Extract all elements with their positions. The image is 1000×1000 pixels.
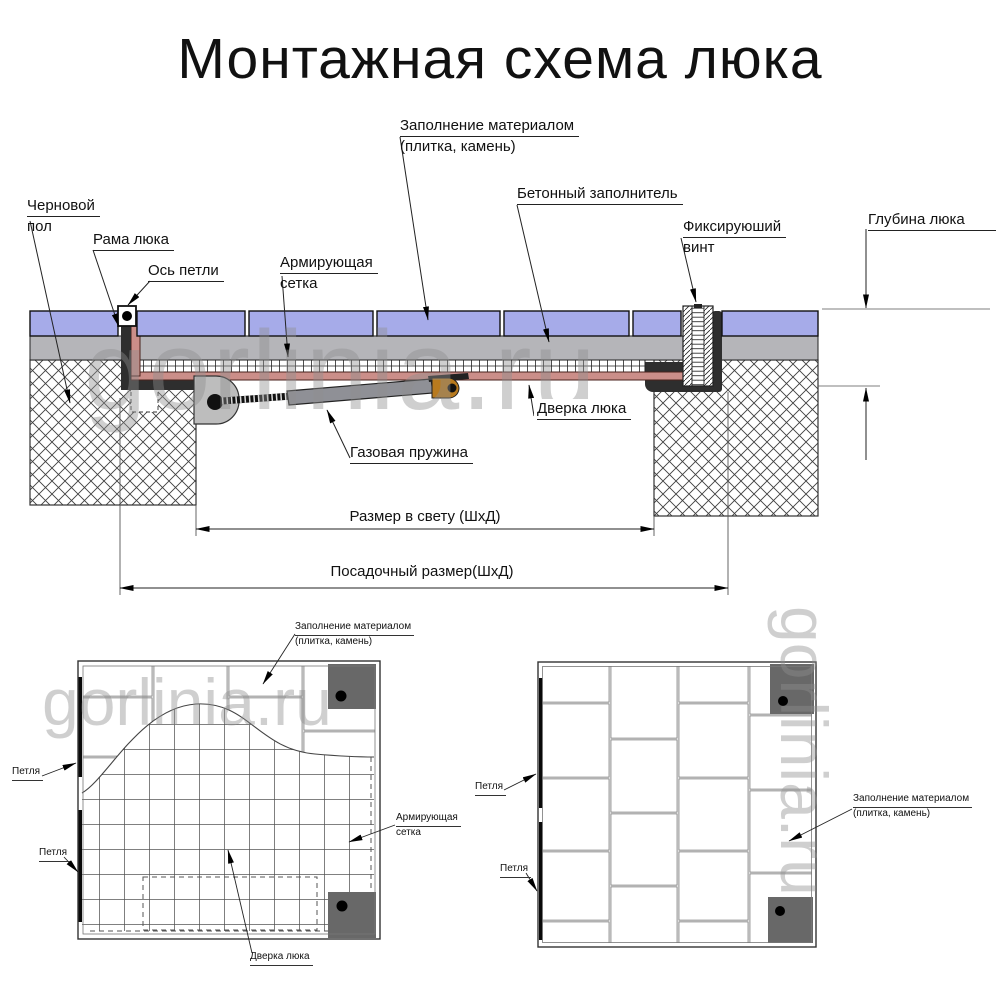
plan-right-label-fill: Заполнение материалом (плитка, камень) [853, 793, 972, 820]
leader-fill [400, 137, 428, 320]
corner-block [770, 664, 814, 714]
plan-left-label-hinge-bottom: Петля [39, 847, 70, 862]
hinge-bar [79, 810, 83, 922]
hinge-axis [118, 306, 136, 326]
cross-section-drawing [30, 137, 990, 595]
corner-block [328, 892, 376, 938]
label-depth: Глубина люка [868, 210, 996, 231]
label-frame: Рама люка [93, 230, 174, 251]
plan-right-drawing [504, 662, 852, 947]
leader-hinge-axis [128, 281, 150, 305]
corner-block [328, 664, 376, 709]
diagram-title: Монтажная схема люка [0, 26, 1000, 92]
label-fill-material: Заполнение материалом (плитка, камень) [400, 116, 579, 156]
hinge-bar [79, 677, 83, 777]
dimension-clear-size: Размер в свету (ШхД) [349, 507, 500, 526]
plan-left-label-hinge-top: Петля [12, 766, 43, 781]
tile [722, 311, 818, 336]
label-hinge-axis: Ось петли [148, 261, 224, 282]
plan-left-label-door: Дверка люка [250, 951, 313, 966]
label-fix-screw: Фиксируюший винт [683, 217, 786, 257]
tile [30, 311, 118, 336]
page: gorlinia.ru gorlinia.ru gorlinia.ru Монт… [0, 0, 1000, 1000]
corner-block [768, 897, 813, 943]
plan-left-label-mesh: Армирующая сетка [396, 812, 461, 839]
plan-right-label-hinge-top: Петля [475, 781, 506, 796]
mesh-band [137, 360, 645, 372]
hinge-bar [539, 678, 543, 808]
label-gas-spring: Газовая пружина [350, 443, 473, 464]
tile [249, 311, 373, 336]
label-mesh: Армирующая сетка [280, 253, 378, 293]
plan-left-drawing [42, 634, 395, 953]
hinge-bar [539, 822, 543, 940]
plan-left-label-fill: Заполнение материалом (плитка, камень) [295, 621, 414, 648]
depth-dimension [818, 229, 990, 460]
tile [137, 311, 245, 336]
tile [504, 311, 629, 336]
tile [377, 311, 500, 336]
fixing-screw [683, 304, 713, 386]
label-concrete: Бетонный заполнитель [517, 184, 683, 205]
label-door: Дверка люка [534, 399, 631, 420]
dimension-mounting-size: Посадочный размер(ШхД) [331, 562, 514, 581]
tile [633, 311, 681, 336]
leader-gas-spring [327, 410, 350, 458]
label-subfloor: Черновой пол [27, 196, 100, 236]
plan-right-label-hinge-bottom: Петля [500, 863, 531, 878]
spring-cylinder [287, 379, 433, 405]
